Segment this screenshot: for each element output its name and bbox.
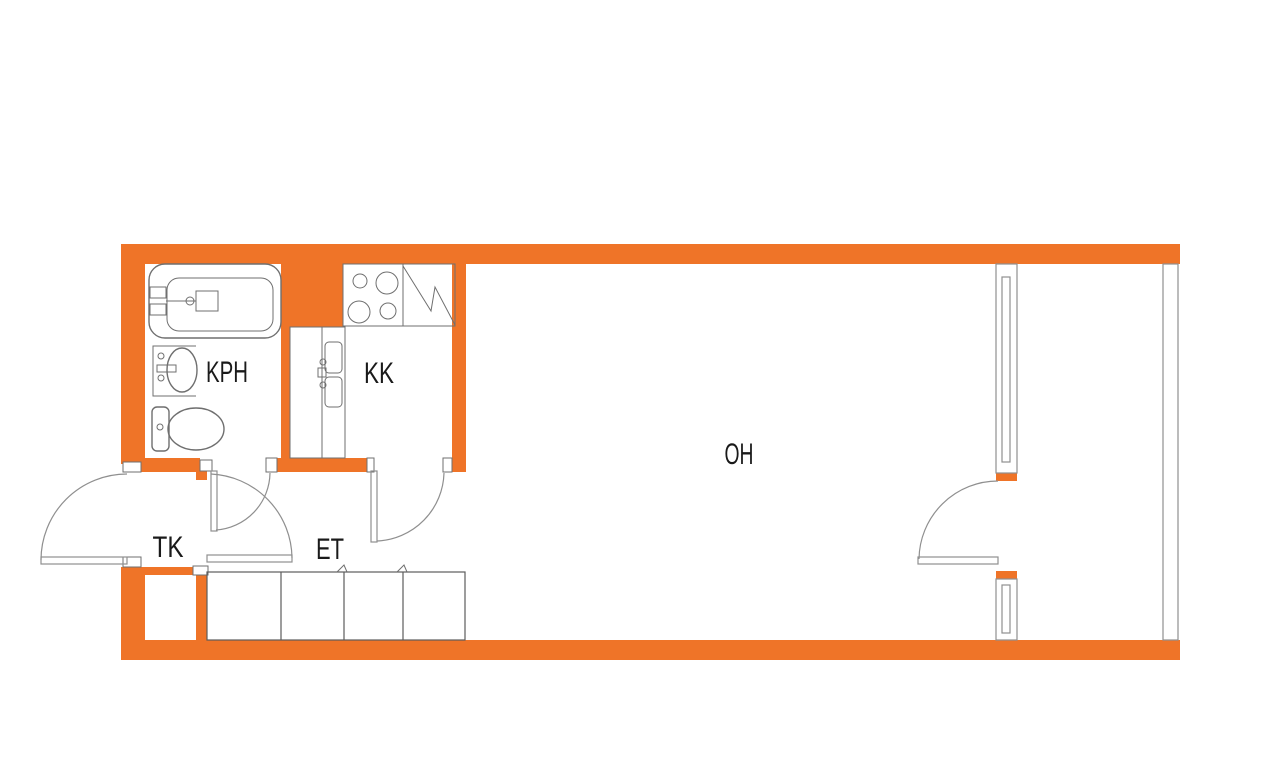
walls: [121, 244, 1180, 660]
closet-side-wall: [196, 567, 207, 640]
entrance-jamb-bottom: [123, 557, 141, 567]
wall-kk-oh: [452, 264, 466, 472]
wall-bottom: [121, 640, 1180, 660]
room-kph: KPH: [149, 264, 281, 451]
kitchen-door: [371, 471, 444, 542]
wardrobes: [207, 565, 465, 640]
wall-left-upper: [121, 244, 145, 464]
room-label-oh: OH: [725, 438, 754, 471]
balcony-door: [918, 481, 998, 564]
wall-left-lower: [121, 567, 145, 660]
balcony-glazing: [1163, 264, 1178, 640]
balcony: [996, 264, 1178, 640]
balcony-wall-stub-lower: [996, 571, 1017, 579]
hall-door: [207, 474, 292, 562]
room-label-kph: KPH: [206, 356, 248, 389]
bathtub: [149, 264, 281, 338]
kk-door-jamb-right: [443, 458, 452, 472]
toilet: [152, 407, 224, 451]
window-lower: [996, 579, 1017, 640]
room-label-tk: TK: [153, 531, 184, 564]
kph-door-jamb-left: [200, 460, 212, 471]
entrance-door: [41, 474, 127, 564]
kk-door-jamb-left: [367, 458, 374, 472]
wardrobe-door-tick: [337, 565, 347, 572]
wall-below-kph-right: [277, 458, 367, 472]
stove: [343, 264, 403, 326]
room-oh: OH: [725, 438, 754, 471]
wall-below-kph-left: [140, 458, 200, 472]
room-label-et: ET: [316, 533, 344, 566]
bathtub-drain: [196, 291, 218, 311]
balcony-wall-stub-upper: [996, 473, 1017, 481]
wall-kph-kk: [281, 327, 290, 458]
closet-jamb: [193, 566, 208, 575]
washbasin: [153, 346, 197, 396]
wall-stub-kph-door: [196, 471, 207, 480]
wardrobe-door-tick: [397, 565, 407, 572]
kph-door-jamb-right: [266, 458, 277, 472]
shaft-block: [281, 264, 343, 327]
floor-plan-page: KPH KK: [0, 0, 1280, 758]
fridge-freezer: [403, 264, 455, 326]
doors: [41, 471, 998, 564]
entrance-jamb-top: [123, 462, 141, 472]
window-upper: [996, 264, 1017, 473]
bathtub-faucet: [150, 287, 166, 298]
floor-plan-drawing: KPH KK: [0, 0, 1280, 758]
kitchen-counter: [290, 327, 345, 458]
room-label-kk: KK: [364, 357, 394, 390]
wall-top: [121, 244, 1180, 264]
